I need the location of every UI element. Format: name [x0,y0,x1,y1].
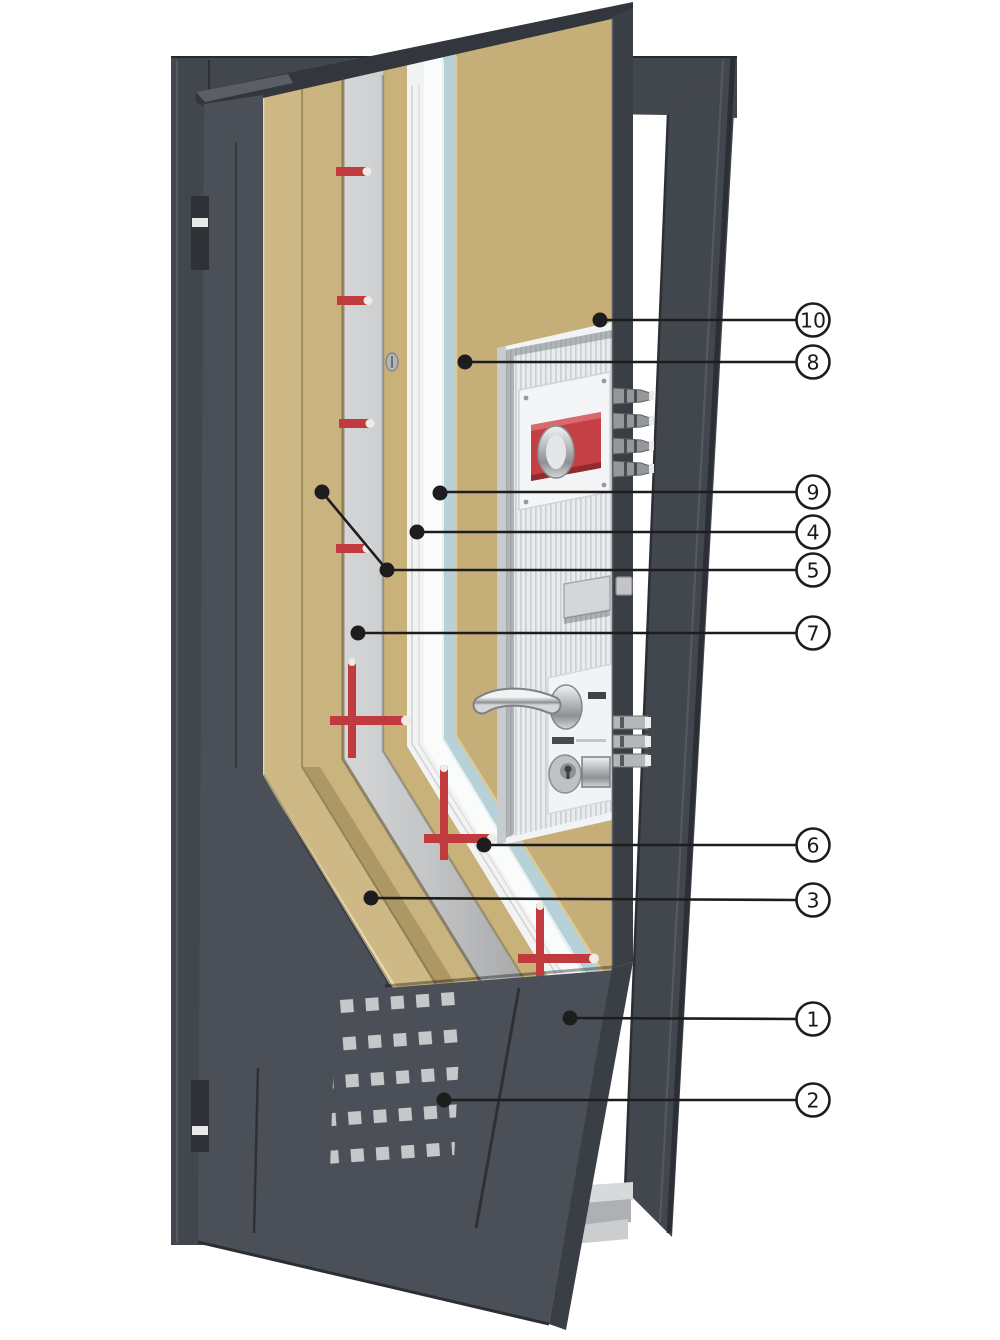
callout-4-anchor-dot [410,525,425,540]
hinge-top [191,196,209,270]
latch-keeper [616,577,632,595]
callout-6-anchor-dot [477,838,492,853]
hinge-bottom-highlight [192,1126,208,1135]
callout-1-leader [570,1018,796,1019]
pocket-side-wall [497,346,506,846]
fastener-cap [401,716,411,726]
perforation-grid [330,984,462,1170]
callout-10-label: 10 [800,309,826,333]
red-clip [339,419,370,428]
callout-1-anchor-dot [563,1011,578,1026]
fastener-cap [348,658,356,666]
fastener-cap [536,902,544,910]
callout-8-anchor-dot [458,355,473,370]
plate-screw [524,500,529,505]
callout-2-anchor-dot [437,1093,452,1108]
keyhole-slot [567,769,570,779]
screw-head [386,353,398,371]
callout-3-label: 3 [806,889,819,913]
plate-screw [602,379,607,384]
plate-screw [602,483,607,488]
red-clip [337,296,368,305]
fastener-cap [589,954,599,964]
handle-lever [482,697,552,705]
callout-7-label: 7 [806,622,819,646]
plate-detail-dark [552,737,574,744]
callout-8-label: 8 [806,351,819,375]
red-clip [336,167,367,176]
callout-10-anchor-dot [593,313,608,328]
callout-9-label: 9 [806,481,819,505]
callout-4-label: 4 [806,521,819,545]
lock-case-block [582,757,610,787]
callout-3-anchor-dot [364,891,379,906]
upper-lock-cylinder-face [546,435,566,469]
callout-2-label: 2 [806,1089,819,1113]
plate-detail-line [576,739,606,742]
callout-6-label: 6 [806,834,819,858]
callout-5-label: 5 [806,559,819,583]
callout-1-label: 1 [806,1008,819,1032]
plate-detail-dark [588,692,606,699]
square-deadbolt [613,716,651,729]
hinge-bottom [191,1080,209,1152]
clip-cap [366,419,375,428]
hinge-top-highlight [192,218,208,227]
red-clip [336,544,367,553]
fastener-cap [440,764,448,772]
clip-cap [363,167,372,176]
door-cutaway-diagram: 10 8 9 4 5 [0,0,1000,1340]
callout-5-anchor-dot-2 [380,563,395,578]
clip-cap [364,296,373,305]
callout-9-anchor-dot [433,486,448,501]
upper-lock [519,372,610,510]
square-deadbolt [613,754,651,767]
diagram-canvas: 10 8 9 4 5 [0,0,1000,1340]
square-deadbolt [613,735,651,748]
callout-5-anchor-dot [315,485,330,500]
plate-screw [524,396,529,401]
callout-7-anchor-dot [351,626,366,641]
auxiliary-latch-block [564,576,610,624]
